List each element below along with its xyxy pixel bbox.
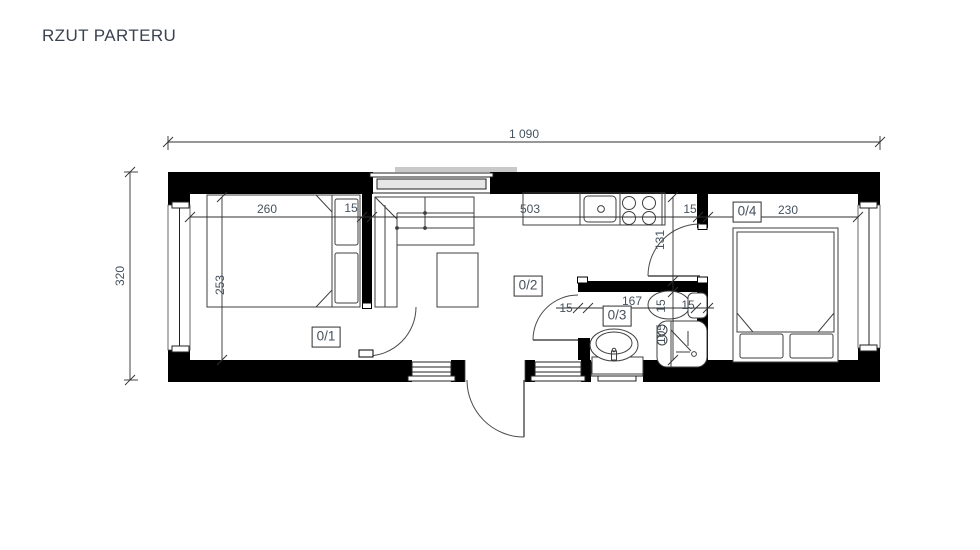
dim-bedroom1-width: 260 — [257, 203, 277, 215]
dim-wall1-thickness: 15 — [344, 202, 357, 214]
dim-bedroom2-width: 230 — [778, 204, 798, 216]
dim-bath-wall-thickness: 15 — [655, 299, 667, 312]
room-label-0-1: 0/1 — [312, 327, 341, 348]
roof-edge-line — [395, 167, 517, 172]
dim-corridor-depth: 131 — [654, 230, 666, 250]
window-bottom-2 — [531, 362, 585, 381]
floor-plan-page: RZUT PARTERU — [0, 0, 980, 550]
dim-total-width: 1 090 — [509, 128, 539, 140]
bed-bedroom1 — [207, 195, 360, 307]
room-label-0-4: 0/4 — [733, 202, 762, 223]
sofa — [375, 197, 474, 307]
dim-wall2-thickness: 15 — [683, 203, 696, 215]
stove-burners — [623, 197, 656, 225]
coffee-table — [437, 253, 478, 307]
floor-plan-drawing — [0, 0, 980, 550]
dim-bath-depth: 105 — [655, 324, 667, 344]
kitchen-sink — [584, 196, 616, 222]
dim-bedroom1-depth: 253 — [214, 275, 226, 295]
doors — [359, 224, 700, 437]
room-label-0-2: 0/2 — [514, 276, 543, 297]
bed-bedroom2 — [733, 228, 838, 362]
kitchen-counter — [523, 193, 665, 225]
dim-living-width: 503 — [520, 203, 540, 215]
window-left — [168, 202, 190, 352]
room-label-0-3: 0/3 — [603, 306, 632, 327]
dim-total-depth: 320 — [114, 266, 126, 286]
dim-bath-left-wall: 15 — [559, 302, 572, 314]
washbasin — [590, 329, 643, 374]
dim-bath-right-wall: 15 — [681, 299, 694, 311]
door-bedroom1 — [359, 307, 416, 357]
window-bottom-1 — [408, 362, 455, 381]
door-entrance — [467, 380, 524, 437]
window-top — [370, 173, 493, 193]
window-right — [858, 202, 880, 351]
